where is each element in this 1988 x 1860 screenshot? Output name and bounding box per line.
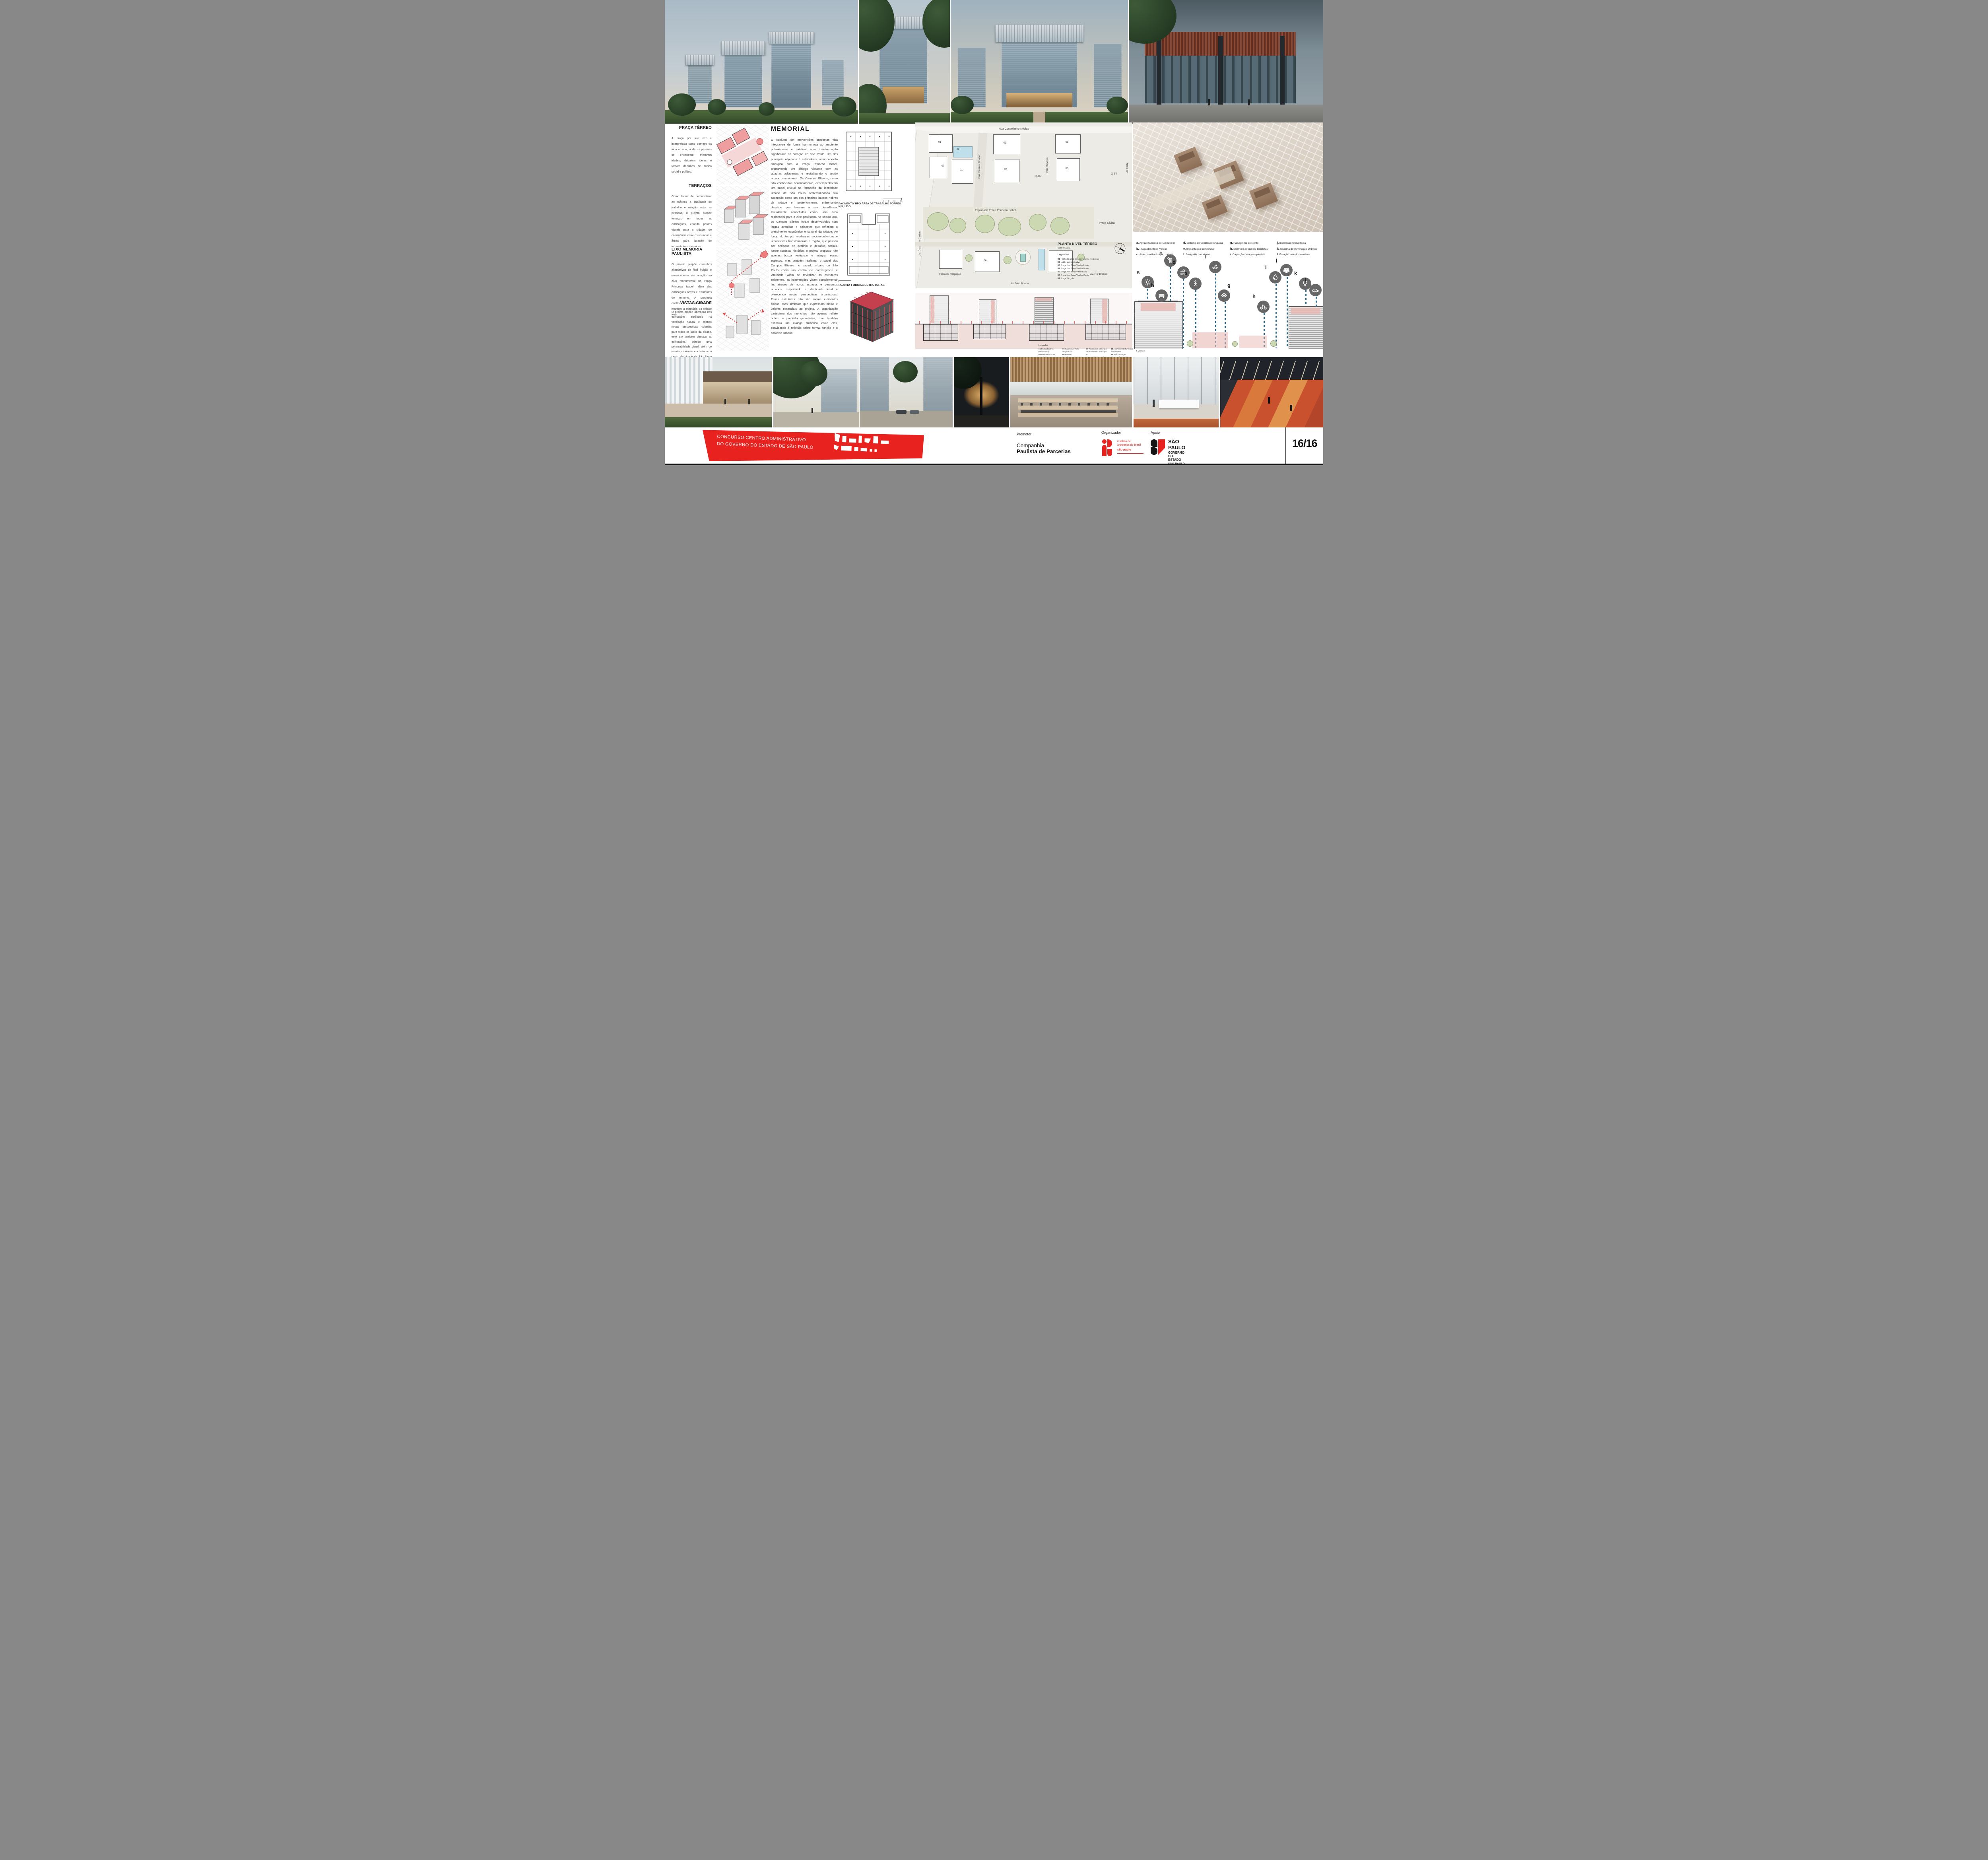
solar-panel-icon	[1280, 264, 1293, 276]
diagram-low-block	[1192, 332, 1228, 348]
warm-base-glow	[883, 87, 924, 103]
item-num: 09	[1086, 348, 1088, 350]
street-label: Al. Glete	[1126, 145, 1129, 173]
building-block	[929, 134, 953, 153]
dotted-line	[1287, 277, 1288, 348]
photo-office-interior	[1010, 357, 1132, 427]
tree	[708, 99, 726, 115]
block-label: 06	[984, 259, 986, 262]
item-num: 02	[1039, 351, 1041, 353]
bird-icon	[1209, 261, 1221, 273]
building-block	[952, 159, 973, 184]
car	[896, 410, 907, 414]
site-monolith	[1249, 183, 1278, 210]
street-label: Rua Conselheiro Nébias	[999, 128, 1029, 130]
icon-letter: i	[1265, 264, 1267, 270]
person	[748, 399, 750, 404]
legend-num: 07	[1058, 278, 1060, 280]
icon-letter: l	[1305, 277, 1306, 283]
underground-levels	[1085, 324, 1126, 340]
underground-levels	[973, 324, 1006, 339]
electric-car-icon	[1309, 284, 1322, 296]
water-strip	[1039, 249, 1045, 270]
iab-line1: instituto de	[1117, 440, 1143, 444]
section-title: PRAÇA TÉRREO	[672, 126, 712, 130]
pavement	[773, 412, 859, 427]
legend-item: 06 Praça das Boas Vindas Oeste	[1058, 274, 1117, 277]
legend-item: 03 Praça das Boas Vindas Leste	[1058, 264, 1117, 267]
footer-divider	[1285, 427, 1286, 464]
photo-night-entrance	[954, 357, 1009, 427]
sections-strip	[915, 293, 1132, 349]
canopy	[998, 217, 1021, 236]
plan2-caption: PLANTA FORMAS ESTRUTURAS	[839, 283, 902, 287]
plan1-scalebar: 0 5 10 20	[883, 198, 902, 202]
diagram-tower-left-crown	[1141, 303, 1176, 311]
building-block	[993, 134, 1020, 154]
person	[812, 408, 813, 413]
terrace-interior	[703, 382, 772, 404]
street-label: Rua General Rondon	[978, 141, 981, 179]
block-label: 01	[960, 169, 963, 171]
sustainability-diagram: a b c d e f g h i j k l	[1133, 250, 1323, 349]
sections-legend-title: Legendas	[1039, 344, 1048, 347]
acesso-label: Veículos	[1138, 350, 1145, 352]
apoio-label: Apoio	[1151, 431, 1160, 435]
sus-label: Instalação fotovoltaica	[1279, 242, 1306, 245]
column	[1218, 36, 1223, 109]
section-text: Como forma de potencializar ao máximo a …	[672, 194, 712, 249]
building-block	[975, 251, 1000, 272]
icon-letter: a	[1137, 269, 1140, 275]
diagram-tower-right-crown	[1291, 308, 1320, 314]
tower	[724, 48, 762, 107]
sus-item: d. Sistema de ventilação cruzada	[1183, 240, 1223, 246]
legend-num: 03	[1058, 264, 1060, 267]
diagram-vistas-cidade-drawing	[716, 302, 769, 351]
sus-key: b.	[1136, 247, 1139, 250]
sp-line1: SÃO PAULO	[1168, 439, 1185, 450]
icon-letter: b	[1151, 282, 1154, 288]
plan1-caption: PAVIMENTO TIPO ÁREA DE TRABALHO TORRES N…	[839, 202, 905, 208]
promotor-block: Promotor Companhia Paulista de Parcerias	[1017, 432, 1071, 454]
diagram-praca-terreo-drawing	[716, 125, 769, 184]
sus-item: j. Instalação fotovoltaica	[1277, 240, 1317, 246]
site-plan-panel: Rua Conselheiro Nébias Av. Duque de Caxi…	[915, 122, 1132, 288]
block-label: 07	[942, 165, 944, 167]
sus-label: Aproveitamento de luz natural	[1140, 242, 1175, 245]
icon-letter: c	[1159, 250, 1162, 256]
concept-section-praca-terreo: PRAÇA TÉRREO A praça por sua vez é inter…	[672, 126, 712, 175]
plan-pavimento-tipo-drawing	[842, 126, 895, 198]
pavement	[954, 415, 1009, 427]
render-tower-through-trees	[859, 0, 950, 124]
pedestrian	[1208, 99, 1210, 105]
tower-crown	[769, 32, 814, 44]
ceiling-lights	[1220, 361, 1323, 381]
competition-board: PRAÇA TÉRREO A praça por sua vez é inter…	[665, 0, 1323, 465]
diagram-terracos-drawing	[716, 186, 769, 246]
iab-line3: são paulo	[1117, 448, 1143, 451]
legend-item: 07 Praça Singular	[1058, 277, 1117, 280]
block-label: 01	[938, 141, 941, 144]
sus-label: Paisagismo existente	[1233, 242, 1258, 245]
concept-section-terracos: TERRAÇOS Como forma de potencializar ao …	[672, 184, 712, 249]
apoio-block: Apoio SÃO PAULO GOVERNO DO ESTADO SÃO PA…	[1151, 431, 1160, 435]
icon-letter: h	[1252, 293, 1256, 299]
tree	[832, 97, 856, 116]
legend-label: Praça das Boas Vindas Sul	[1061, 271, 1087, 273]
acessos-legend: Acessos A Pedestres B Veículos	[1136, 348, 1160, 357]
banner-logo-glyph	[833, 433, 914, 458]
memorial-text: O conjunto de intervenções propostas vis…	[771, 138, 838, 336]
scale-tick: 5	[888, 200, 889, 202]
legend-suffix: 80% de mezanino + sobreloja	[1075, 258, 1099, 260]
building-block	[939, 250, 962, 269]
item-label: Pavimento adm. tipo 02	[1086, 351, 1107, 356]
page-number: 16/16	[1292, 437, 1317, 450]
legend-item: 01 Fachada ativa 80% de mezanino + sobre…	[1058, 258, 1117, 261]
bicycle-icon	[1257, 301, 1270, 313]
sp-logo	[1151, 439, 1166, 455]
sp-line2: GOVERNO DO ESTADO	[1168, 451, 1185, 462]
photo-courtyard-parking	[860, 357, 953, 427]
column	[1157, 36, 1161, 109]
item-label: Rooftop	[1065, 354, 1072, 356]
icon-letter: k	[1294, 270, 1297, 276]
plan-pavimento-tipo	[842, 126, 895, 198]
acesso-key: B	[1136, 350, 1138, 352]
tree	[668, 93, 696, 116]
pedestrian-icon	[1189, 278, 1202, 290]
figures	[919, 321, 1130, 324]
scale-tick: 0	[883, 200, 884, 202]
tower-main-crown	[995, 25, 1083, 42]
item-num: 05	[1062, 348, 1064, 350]
building-left	[860, 357, 889, 413]
dotted-line	[1183, 279, 1184, 348]
site-monolith	[1202, 195, 1227, 219]
diagram-eixo-memoria-drawing	[716, 247, 769, 307]
pedestrian	[1248, 99, 1250, 105]
column	[980, 377, 982, 415]
organizador-block: Organizador instituto de arquitetos do b…	[1101, 431, 1121, 435]
diagram-terracos	[716, 186, 769, 246]
person	[1290, 405, 1292, 411]
icon-letter: j	[1276, 257, 1277, 263]
sus-item: a. Aproveitamento de luz natural	[1136, 240, 1175, 246]
block-label: 05	[1066, 167, 1068, 170]
legend-num: 01	[1058, 258, 1060, 260]
promotor-name-line1: Companhia	[1017, 443, 1071, 448]
icon-letter: d	[1173, 259, 1176, 265]
tree	[1004, 256, 1011, 264]
diagram-low-block	[1239, 336, 1267, 348]
diagram-vistas-cidade	[716, 302, 769, 351]
tower	[771, 38, 811, 108]
tree	[1107, 97, 1128, 114]
section-title: VISTAS CIDADE	[672, 301, 712, 305]
plan-formas	[842, 210, 895, 281]
siteplan-legend-title: Legendas	[1058, 253, 1117, 256]
legend-label: Praça das Boas Vindas Norte	[1061, 268, 1089, 270]
structural-axon-drawing	[839, 288, 899, 349]
iab-text: instituto de arquitetos do brasil são pa…	[1117, 440, 1143, 454]
siteplan-title: PLANTA NÍVEL TÉRREO	[1058, 242, 1117, 246]
item-label: Sobreloja	[1041, 351, 1050, 353]
memorial-title: MEMORIAL	[771, 126, 838, 133]
item-label: Pavimento Adm. Singular 02	[1062, 348, 1079, 353]
warm-colonnade	[1006, 93, 1072, 107]
lawn	[665, 417, 772, 427]
item-num: 01	[1039, 348, 1041, 350]
canopy	[1029, 214, 1046, 231]
section-title: EIXO MEMÓRIA PAULISTA	[672, 247, 712, 256]
promotor-name-line2: Paulista de Parcerias	[1017, 448, 1071, 454]
title-banner: CONCURSO CENTRO ADMINISTRATIVO DO GOVERN…	[703, 429, 924, 461]
sus-key: e.	[1183, 247, 1186, 250]
sus-label: Sistema de ventilação cruzada	[1186, 242, 1223, 245]
car	[910, 410, 919, 414]
legend-item: 05 Praça das Boas Vindas Sul	[1058, 270, 1117, 274]
sus-label: Estímulo ao uso de bicicletas	[1233, 248, 1268, 250]
siteplan-legend: PLANTA NÍVEL TÉRREO sem escala Legendas …	[1058, 242, 1117, 280]
street-label: Rua Helvétia	[1046, 141, 1048, 173]
sus-key: d.	[1183, 241, 1186, 245]
legend-label: Fachada ativa	[1061, 258, 1074, 260]
water-drop-icon	[1269, 271, 1281, 283]
siteplan-subtitle: sem escala	[1058, 247, 1117, 249]
quad-label: Q 46	[1035, 175, 1041, 178]
memorial-block: MEMORIAL O conjunto de intervenções prop…	[771, 126, 838, 336]
legend-item: 04 Praça das Boas Vindas Norte	[1058, 267, 1117, 270]
icon-letter: e	[1184, 270, 1187, 276]
item-label: Apartamento funcional autoridades	[1111, 348, 1133, 353]
aerial-massing-render	[1133, 122, 1323, 232]
structural-axon	[839, 288, 899, 349]
plan-formas-drawing	[842, 210, 895, 281]
icon-letter: g	[1227, 282, 1231, 288]
legend-label: Lobby administrativo	[1061, 261, 1080, 264]
tiered-seating	[1220, 380, 1323, 427]
item-num: 06	[1062, 354, 1064, 356]
block-label: 02	[957, 148, 959, 151]
legend-num: 06	[1058, 274, 1060, 277]
iab-logo	[1101, 439, 1115, 456]
item-label: Heliponto Q34	[1114, 354, 1126, 356]
tree	[800, 361, 827, 386]
item-num: 10	[1086, 351, 1088, 353]
tree	[759, 102, 775, 116]
person	[724, 399, 726, 404]
render-frontal-monolith	[951, 0, 1128, 124]
building-right	[923, 357, 953, 413]
iab-line2: arquitetos do brasil	[1117, 444, 1143, 447]
sus-key: k.	[1277, 247, 1279, 250]
scale-tick: 20	[900, 200, 902, 202]
diagram-tree	[1270, 340, 1277, 347]
street-label: Av. Dino Bueno	[1011, 282, 1029, 285]
street-label: Esplanada Praça Princesa Isabel	[975, 209, 1016, 212]
sus-item: g. Paisagismo existente	[1230, 240, 1268, 246]
quad-label: Q 34	[1111, 173, 1117, 175]
tower-crown	[685, 55, 714, 65]
site-monolith	[1174, 147, 1203, 174]
terrace-ceiling	[703, 371, 772, 382]
sus-label: Praça das Boas Vindas	[1140, 248, 1167, 250]
street-label: Praça Cívica	[1099, 222, 1115, 225]
canopy	[975, 215, 995, 233]
street-label: Av. Duque de Caxias	[918, 212, 921, 256]
canopy	[949, 218, 966, 233]
tree-icon	[1218, 289, 1230, 302]
desk-row	[1018, 398, 1118, 402]
person	[1268, 397, 1270, 404]
sus-label: Sistema de iluminação 901m/w	[1280, 248, 1317, 250]
section-text: O projeto propõe aberturas nas edificaçõ…	[672, 310, 712, 365]
mullions	[1134, 357, 1219, 405]
sus-key: j.	[1277, 241, 1279, 245]
tree	[965, 254, 973, 262]
pavement	[1129, 105, 1323, 124]
column	[1280, 36, 1285, 109]
plan2-scalebar	[839, 280, 851, 282]
item-num: 14	[1111, 354, 1113, 356]
bench-icon	[1155, 289, 1168, 302]
underground-levels	[1029, 324, 1064, 341]
section-tower-accent	[930, 296, 934, 323]
legend-num: 02	[1058, 261, 1060, 264]
reception-desk	[1159, 400, 1199, 408]
render-aerial-dusk-wide	[665, 0, 858, 124]
diagram-eixo-memoria	[716, 247, 769, 307]
legend-item: 02 Lobby administrativo	[1058, 261, 1117, 264]
window-band	[1010, 382, 1132, 395]
section-tower-accent	[1102, 299, 1107, 323]
legend-num: 05	[1058, 271, 1060, 273]
tree	[893, 361, 918, 382]
block-label: 04	[1004, 168, 1007, 171]
section-tower-accent	[1035, 298, 1052, 301]
iab-underline	[1117, 453, 1143, 454]
block-label: 01	[1066, 141, 1068, 144]
scale-tick: 10	[893, 200, 895, 202]
building-block	[995, 159, 1019, 182]
diagram-tree	[1187, 340, 1193, 347]
item-label: Fachada ativa	[1041, 348, 1054, 350]
photo-auditorium-steps	[1220, 357, 1323, 427]
sus-key: a.	[1136, 241, 1139, 245]
concept-section-vistas-cidade: VISTAS CIDADE O projeto propõe aberturas…	[672, 301, 712, 365]
block-label: 03	[1004, 142, 1006, 144]
section-title: TERRAÇOS	[672, 184, 712, 188]
promotor-label: Promotor	[1017, 432, 1071, 436]
canopy	[927, 212, 949, 231]
sus-key: h.	[1230, 247, 1233, 250]
sp-text: SÃO PAULO GOVERNO DO ESTADO SÃO PAULO SÃ…	[1168, 439, 1185, 465]
building-block	[930, 157, 947, 178]
building-block	[1055, 134, 1081, 153]
render-entrance-street-level	[1129, 0, 1323, 124]
tree	[951, 96, 974, 114]
photo-terrace	[665, 357, 772, 427]
diagram-tree	[1232, 341, 1238, 347]
photo-lobby-reception	[1134, 357, 1219, 427]
item-label: Pavimento adm. tipo	[1089, 348, 1107, 350]
building-block	[1057, 158, 1080, 181]
photo-street-trees	[773, 357, 859, 427]
bottom-edge-bar	[665, 464, 1323, 465]
chairs	[1021, 403, 1116, 406]
person	[1153, 400, 1155, 407]
sus-label: Implantação caminhável	[1186, 248, 1215, 250]
underground-levels	[923, 324, 958, 341]
organizador-label: Organizador	[1101, 431, 1121, 435]
icon-letter: f	[1204, 254, 1206, 260]
deck	[665, 404, 772, 417]
legend-label: Praça Singular	[1061, 278, 1075, 280]
wood-slat-ceiling	[1010, 357, 1132, 382]
legend-label: Praça das Boas Vindas Leste	[1061, 264, 1089, 267]
dotted-line	[1276, 284, 1277, 348]
wind-icon	[1177, 266, 1190, 279]
section-tower-accent	[991, 300, 995, 323]
monument-water	[1020, 254, 1026, 262]
tower-crown	[721, 41, 765, 55]
path	[1033, 112, 1045, 124]
canopy	[1050, 217, 1070, 235]
item-num: 13	[1111, 348, 1113, 350]
legend-num: 04	[1058, 268, 1060, 270]
legend-label: Praça das Boas Vindas Oeste	[1061, 274, 1089, 277]
item-num: 03	[1039, 354, 1041, 356]
north-arrow-icon	[1114, 243, 1126, 254]
street-label: Faixa de mitigação	[939, 273, 961, 276]
sections-legend: Legendas 01 Fachada ativa 02 Sobreloja 0…	[1039, 348, 1132, 357]
orange-runner	[1134, 419, 1219, 427]
section-text: A praça por sua vez é interpretada como …	[672, 136, 712, 175]
sus-key: g.	[1230, 241, 1233, 245]
diagram-praca-terreo	[716, 125, 769, 184]
